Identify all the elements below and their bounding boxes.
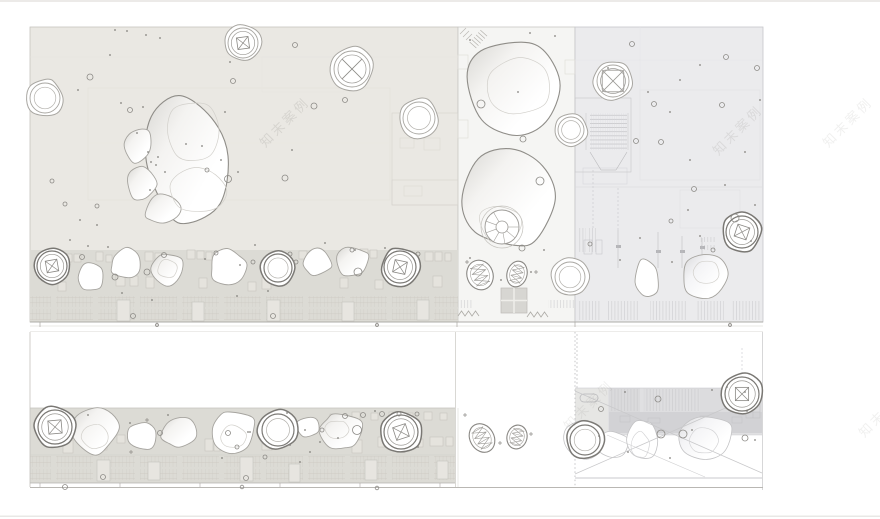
point-dot: [185, 143, 187, 145]
market-stall: [96, 252, 103, 261]
point-dot: [79, 219, 81, 221]
shelf-aisle-gap: [177, 456, 182, 480]
point-dot: [77, 89, 79, 91]
point-dot: [699, 64, 701, 66]
point-dot: [220, 159, 222, 161]
market-stall: [205, 439, 213, 451]
shelf-aisle-gap: [345, 456, 350, 480]
market-stall: [440, 413, 447, 420]
stall-door: [365, 460, 377, 480]
point-dot: [309, 451, 311, 453]
point-dot: [724, 184, 726, 186]
point-dot: [598, 435, 600, 437]
stall-door: [97, 460, 110, 481]
point-dot: [164, 171, 166, 173]
point-dot: [145, 34, 147, 36]
point-dot: [147, 151, 149, 153]
shelf-aisle-gap: [387, 296, 392, 320]
point-dot: [142, 106, 144, 108]
shelf-aisle-gap: [387, 456, 392, 480]
point-dot: [129, 422, 131, 424]
point-dot: [679, 79, 681, 81]
point-dot: [126, 30, 128, 32]
market-stall: [446, 437, 453, 446]
dimension-mark: [700, 246, 705, 249]
point-dot: [689, 159, 691, 161]
shelf-aisle-gap: [303, 296, 308, 320]
stall-door: [240, 457, 253, 481]
stall-door: [148, 462, 160, 480]
market-stall: [371, 413, 378, 420]
market-stall: [117, 435, 125, 443]
pavilion-blob: [127, 423, 156, 450]
point-dot: [354, 249, 356, 251]
point-dot: [120, 102, 122, 104]
ring-marker: [400, 98, 438, 139]
stall-door: [437, 461, 448, 479]
point-dot: [374, 410, 376, 412]
point-dot: [247, 431, 249, 433]
point-dot: [136, 132, 138, 134]
market-stall: [187, 250, 195, 259]
truss-oval: [504, 423, 530, 451]
truss-oval: [464, 419, 500, 457]
shelving-hatch: [590, 113, 627, 150]
point-dot: [159, 37, 161, 39]
point-dot: [726, 386, 728, 388]
point-dot: [221, 457, 223, 459]
point-dot: [155, 164, 157, 166]
point-dot: [417, 446, 419, 448]
shelf-aisle-gap: [219, 456, 224, 480]
stall-door: [267, 300, 280, 321]
point-dot: [107, 246, 109, 248]
point-dot: [530, 271, 532, 273]
point-dot: [249, 431, 251, 433]
point-dot: [291, 149, 293, 151]
market-stall: [370, 250, 377, 258]
shelf-aisle-gap: [51, 456, 56, 480]
market-stall: [340, 278, 348, 288]
point-dot: [87, 414, 89, 416]
market-stall: [424, 412, 432, 420]
point-dot: [671, 261, 673, 263]
point-dot: [236, 295, 238, 297]
shelf-aisle-gap: [303, 456, 308, 480]
ring-marker: [567, 421, 605, 459]
architectural-plan-sheet: 知末案例知末案例知末案例知末案例知末案例: [0, 0, 880, 519]
small-circle-marker: [240, 485, 244, 489]
ring-marker: [551, 258, 590, 295]
stall-door: [289, 464, 300, 482]
point-dot: [150, 161, 152, 163]
point-dot: [267, 290, 269, 292]
stall-door: [192, 302, 204, 321]
point-dot: [687, 209, 689, 211]
point-dot: [204, 258, 206, 260]
shelf-aisle-gap: [261, 456, 266, 480]
shelf-aisle-gap: [688, 301, 696, 320]
point-dot: [167, 414, 169, 416]
point-dot: [286, 412, 288, 414]
market-stall: [445, 253, 451, 261]
point-dot: [750, 240, 752, 242]
pavilion-blob: [78, 263, 103, 290]
point-dot: [149, 189, 151, 191]
market-stall: [146, 277, 154, 288]
point-dot: [699, 235, 701, 237]
point-dot: [754, 439, 756, 441]
point-dot: [746, 410, 748, 412]
market-stall: [248, 282, 256, 291]
point-dot: [619, 259, 621, 261]
point-dot: [87, 245, 89, 247]
shelf-aisle-gap: [93, 296, 98, 320]
shelf-aisle-gap: [429, 296, 434, 320]
shelf-aisle-gap: [640, 301, 650, 320]
market-stall: [106, 255, 112, 262]
point-dot: [96, 224, 98, 226]
point-dot: [647, 91, 649, 93]
market-stall: [145, 252, 153, 261]
point-dot: [289, 444, 291, 446]
point-dot: [554, 35, 556, 37]
shelf-aisle-gap: [600, 301, 608, 320]
market-stall: [206, 252, 212, 260]
point-dot: [69, 239, 71, 241]
shelving-hatch: [644, 389, 699, 411]
point-dot: [624, 391, 626, 393]
point-dot: [237, 171, 239, 173]
point-dot: [224, 111, 226, 113]
point-dot: [517, 91, 519, 93]
market-stall: [375, 280, 383, 289]
point-dot: [669, 111, 671, 113]
small-circle-marker: [63, 485, 68, 490]
stall-door: [342, 302, 354, 321]
dimension-mark: [680, 250, 685, 253]
shelf-aisle-gap: [724, 301, 732, 320]
dimension-mark: [656, 250, 661, 253]
point-dot: [744, 151, 746, 153]
point-dot: [607, 67, 609, 69]
shelf-aisle-gap: [261, 296, 266, 320]
point-dot: [469, 39, 471, 41]
point-dot: [669, 457, 671, 459]
point-dot: [759, 99, 761, 101]
site-plan-drawing: [0, 0, 880, 519]
point-dot: [157, 156, 159, 158]
point-dot: [201, 145, 203, 147]
dimension-mark: [616, 245, 621, 248]
point-dot: [254, 244, 256, 246]
point-dot: [151, 299, 153, 301]
shelf-aisle-gap: [219, 296, 224, 320]
shelving-hatch: [458, 300, 472, 308]
point-dot: [304, 429, 306, 431]
market-stall: [425, 252, 433, 261]
point-dot: [324, 242, 326, 244]
shelving-hatch: [548, 300, 574, 308]
point-dot: [109, 54, 111, 56]
shelving-hatch: [700, 237, 716, 242]
market-stall: [197, 251, 204, 259]
point-dot: [744, 391, 746, 393]
small-circle-marker: [742, 435, 748, 441]
point-dot: [121, 292, 123, 294]
market-stall: [430, 437, 443, 446]
point-dot: [239, 264, 241, 266]
page-edge-band: [0, 516, 880, 518]
point-dot: [319, 441, 321, 443]
shelf-aisle-gap: [51, 296, 56, 320]
market-stall: [199, 278, 207, 288]
shelf-aisle-gap: [177, 296, 182, 320]
point-dot: [114, 29, 116, 31]
point-dot: [337, 437, 339, 439]
stall-door: [117, 300, 130, 321]
point-dot: [299, 461, 301, 463]
market-stall: [433, 276, 442, 287]
point-dot: [639, 237, 641, 239]
point-dot: [627, 451, 629, 453]
point-dot: [469, 257, 471, 259]
shelf-aisle-gap: [429, 456, 434, 480]
shelf-aisle-gap: [135, 456, 140, 480]
small-circle-marker: [375, 486, 379, 490]
stall-door: [417, 300, 429, 320]
point-dot: [384, 247, 386, 249]
page-edge-band: [0, 0, 880, 2]
point-dot: [500, 279, 502, 281]
ring-marker: [555, 114, 588, 147]
market-stall: [435, 252, 442, 261]
point-dot: [754, 204, 756, 206]
point-dot: [543, 249, 545, 251]
point-dot: [691, 429, 693, 431]
point-dot: [711, 389, 713, 391]
point-dot: [229, 61, 231, 63]
point-dot: [529, 32, 531, 34]
